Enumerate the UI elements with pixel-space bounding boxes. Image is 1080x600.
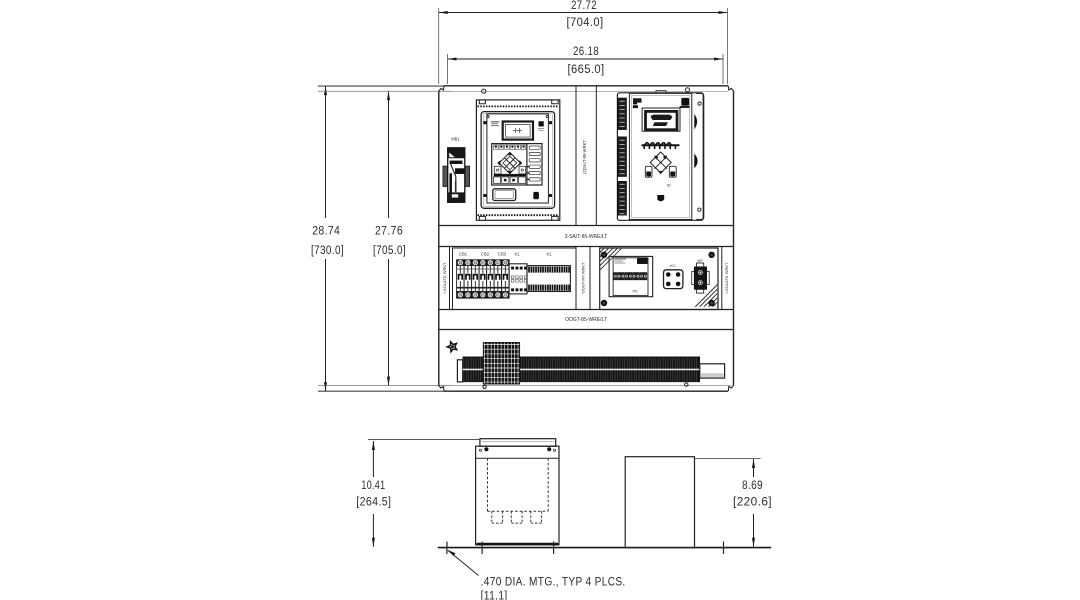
svg-text:PS: PS [632, 290, 638, 294]
svg-text:K1: K1 [546, 252, 552, 257]
svg-text:.470 DIA. MTG., TYP 4 PLCS.: .470 DIA. MTG., TYP 4 PLCS. [481, 577, 626, 589]
svg-text:[264.5]: [264.5] [356, 497, 391, 509]
svg-text:8.69: 8.69 [742, 480, 763, 492]
svg-text:I-SOLATE-WRKT: I-SOLATE-WRKT [442, 262, 447, 294]
svg-text:CB2: CB2 [481, 252, 490, 257]
svg-text:OOGT-RT-WRKT: OOGT-RT-WRKT [581, 262, 586, 294]
svg-text:[705.0]: [705.0] [373, 245, 406, 257]
svg-text:27.76: 27.76 [375, 226, 403, 238]
svg-text:[220.6]: [220.6] [733, 497, 772, 509]
svg-text:[665.0]: [665.0] [568, 64, 605, 76]
svg-text:[704.0]: [704.0] [567, 17, 604, 29]
svg-text:10.41: 10.41 [361, 480, 385, 492]
svg-text:CB1: CB1 [459, 252, 468, 257]
svg-text:OOGT-85-WRE/LT: OOGT-85-WRE/LT [565, 317, 607, 323]
svg-text:KP: KP [697, 259, 703, 263]
svg-text:ID: ID [667, 184, 671, 188]
svg-text:3-SA/T-85-WRE/LT: 3-SA/T-85-WRE/LT [565, 234, 608, 240]
svg-text:27.72: 27.72 [571, 0, 597, 12]
svg-text:(2)SA/T-85-WRKT: (2)SA/T-85-WRKT [582, 140, 587, 174]
svg-text:26.18: 26.18 [573, 46, 599, 58]
svg-text:KC: KC [670, 263, 676, 268]
svg-text:[730.0]: [730.0] [311, 245, 344, 257]
svg-text:[11.1]: [11.1] [481, 591, 508, 600]
svg-text:28.74: 28.74 [312, 226, 340, 238]
svg-text:I-SOLATE-WRKT: I-SOLATE-WRKT [724, 262, 729, 294]
svg-text:CB3: CB3 [498, 252, 507, 257]
svg-text:MB1: MB1 [451, 137, 460, 142]
svg-text:K1: K1 [514, 252, 520, 257]
